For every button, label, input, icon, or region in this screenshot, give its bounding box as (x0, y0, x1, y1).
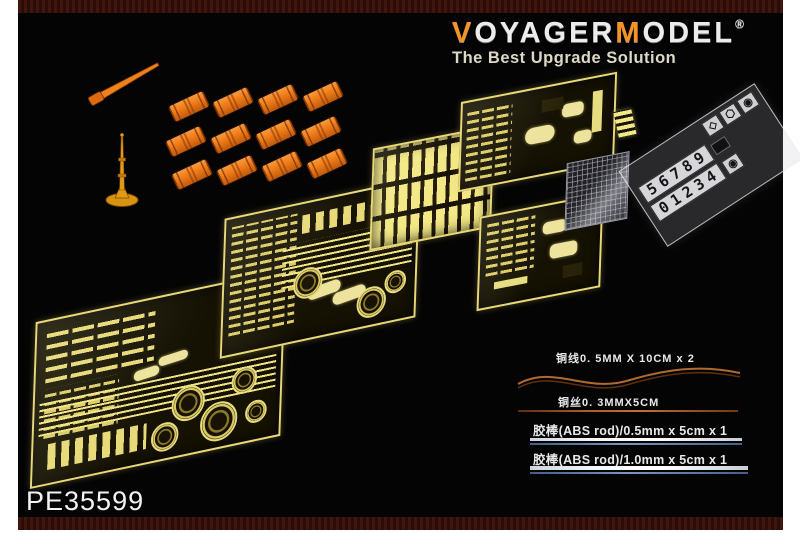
abs-rod-05-spec-label: 胶棒(ABS rod)/0.5mm x 5cm x 1 (533, 420, 727, 439)
cleaning-rod (82, 58, 164, 110)
copper-wire-thin-spec-label: 铜丝0. 3MMX5CM (558, 394, 659, 410)
product-code: PE35599 (26, 486, 144, 517)
antenna-part (102, 128, 142, 210)
abs-rod-05 (530, 438, 742, 445)
decal-dash-mark (710, 136, 731, 155)
brand-letter-m: M (615, 17, 642, 49)
brand-logo: VOYAGERMODEL® The Best Upgrade Solution (452, 8, 782, 67)
wheel-symbol-icon: ◉ (721, 152, 745, 175)
product-photo: VOYAGERMODEL® The Best Upgrade Solution (0, 0, 800, 533)
brand-tagline: The Best Upgrade Solution (452, 49, 782, 67)
brand-letter-v: V (452, 17, 474, 49)
straight-copper-wire (518, 410, 738, 412)
wavy-copper-wires (514, 360, 746, 394)
registered-mark: ® (735, 17, 744, 31)
brand-letters-oyager: OYAGER (474, 17, 615, 49)
abs-rod-10 (530, 466, 748, 474)
brand-name: VOYAGERMODEL® (452, 8, 782, 49)
bottom-border-bar (18, 517, 783, 530)
brand-letters-odel: ODEL (643, 17, 736, 49)
mesh-film (564, 151, 629, 231)
